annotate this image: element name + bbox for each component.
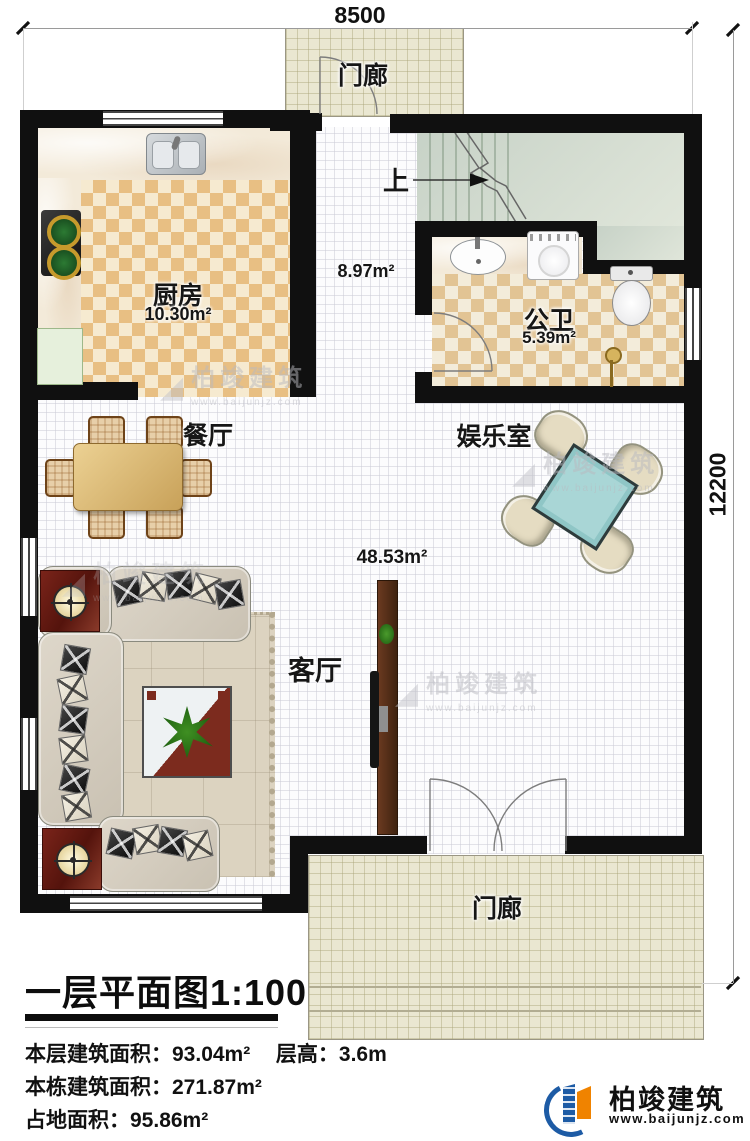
window-kitchen [103, 111, 223, 126]
floor-area: 本层建筑面积：93.04m² [25, 1043, 250, 1066]
pillow [56, 673, 88, 705]
tv-screen [370, 671, 379, 768]
watermark: ◢ 柏竣建筑 www.baijunjz.com [62, 562, 209, 606]
coffee-table [142, 686, 232, 778]
washer-drum [538, 245, 570, 277]
window-living-bottom [70, 896, 262, 911]
window-bathroom [685, 288, 701, 360]
gas-stove [41, 210, 81, 276]
label-porch-bottom: 门廊 [472, 889, 522, 925]
plan-title: 一层平面图1:100 [25, 964, 307, 1016]
fridge [37, 328, 83, 385]
stairwell [417, 132, 684, 226]
dining-chair [180, 459, 212, 497]
table-corner [147, 691, 156, 700]
extension-line [23, 28, 24, 110]
tv-plant [379, 624, 394, 644]
info-building-area: 本栋建筑面积：271.87m² [25, 1071, 262, 1101]
watermark-url: www.baijunjz.com [426, 703, 537, 714]
dining-table [73, 443, 183, 511]
watermark-url: www.baijunjz.com [543, 483, 654, 494]
watermark: ◢ 柏竣建筑 www.baijunjz.com [512, 452, 659, 496]
watermark-url: www.baijunjz.com [93, 593, 204, 604]
company-logo-icon [544, 1076, 602, 1134]
table-lamp [56, 843, 90, 877]
kitchen-sink [146, 133, 206, 175]
window-left-lower [21, 718, 37, 790]
burner [47, 246, 81, 280]
label-entertainment: 娱乐室 [456, 417, 531, 453]
floor-plan: 8500 12200 门廊 厨房 10.30m² 8.97m² 上 公卫 5.3… [0, 0, 750, 1141]
label-hallway-area: 8.97m² [337, 261, 394, 282]
dimension-height: 12200 [705, 444, 732, 526]
toilet [608, 266, 654, 326]
stair-landing [597, 226, 684, 262]
watermark-text: 柏竣建筑 [426, 671, 542, 698]
watermark-text: 柏竣建筑 [543, 451, 659, 478]
watermark: ◢ 柏竣建筑 www.baijunjz.com [160, 366, 307, 410]
info-land-area: 占地面积：95.86m² [25, 1104, 208, 1134]
burner [47, 215, 81, 249]
tv-mount [379, 706, 388, 732]
title-underline-thick [25, 1014, 278, 1021]
wall-right [684, 114, 702, 854]
pillow [60, 644, 91, 675]
watermark-logo-icon: ◢ [160, 373, 183, 403]
toilet-flush-button [628, 270, 633, 275]
floor-drain-pipe [610, 360, 613, 387]
floor-height: 层高：3.6m [276, 1043, 387, 1066]
porch-step-line [309, 1010, 701, 1012]
label-kitchen-area: 10.30m² [144, 304, 211, 325]
wall-connector [290, 836, 308, 913]
title-underline-thin [25, 1027, 278, 1028]
washing-machine [527, 231, 579, 280]
pillow [58, 734, 88, 764]
pillow [214, 579, 245, 610]
wall-top-right [390, 114, 702, 133]
wall-bottom-left-of-door [290, 836, 427, 854]
toilet-bowl [612, 280, 651, 326]
watermark: ◢ 柏竣建筑 www.baijunjz.com [395, 672, 542, 716]
label-bathroom-area: 5.39m² [522, 328, 576, 348]
faucet [475, 237, 480, 249]
wall-bottom-right-of-door [565, 836, 702, 854]
watermark-logo-icon: ◢ [512, 459, 535, 489]
company-website: www.baijunjz.com [609, 1111, 745, 1126]
wall-kitchen-right [290, 127, 316, 397]
dimension-line-right [733, 30, 734, 983]
wall-bath-left-upper [415, 230, 432, 315]
info-floor-area-line: 本层建筑面积：93.04m² 层高：3.6m [25, 1038, 387, 1068]
porch-bottom-floor [308, 855, 704, 1040]
plant [161, 706, 213, 758]
window-left-upper [21, 538, 37, 616]
logo-building-blue [563, 1084, 575, 1124]
wall-bath-bottom [415, 386, 702, 403]
wall-left [20, 110, 38, 912]
watermark-logo-icon: ◢ [62, 569, 85, 599]
pillow [58, 704, 88, 734]
label-stairs-up: 上 [383, 161, 409, 198]
bathroom-sink [450, 239, 506, 275]
extension-line [692, 22, 693, 114]
watermark-text: 柏竣建筑 [191, 365, 307, 392]
label-porch-top: 门廊 [338, 56, 388, 92]
extension-line [702, 983, 733, 984]
floor-drain [605, 347, 622, 364]
sink-basin [178, 141, 200, 169]
table-corner [218, 691, 227, 700]
pillow [181, 829, 213, 861]
pillow [61, 791, 92, 822]
watermark-text: 柏竣建筑 [93, 561, 209, 588]
washer-panel [530, 234, 576, 241]
label-dining: 餐厅 [183, 416, 233, 452]
porch-step-line [309, 986, 701, 988]
label-living-area: 48.53m² [357, 547, 428, 569]
dimension-width: 8500 [334, 2, 385, 29]
watermark-logo-icon: ◢ [395, 679, 418, 709]
watermark-url: www.baijunjz.com [191, 397, 302, 408]
sink-drain [476, 259, 481, 264]
label-living: 客厅 [288, 649, 342, 688]
